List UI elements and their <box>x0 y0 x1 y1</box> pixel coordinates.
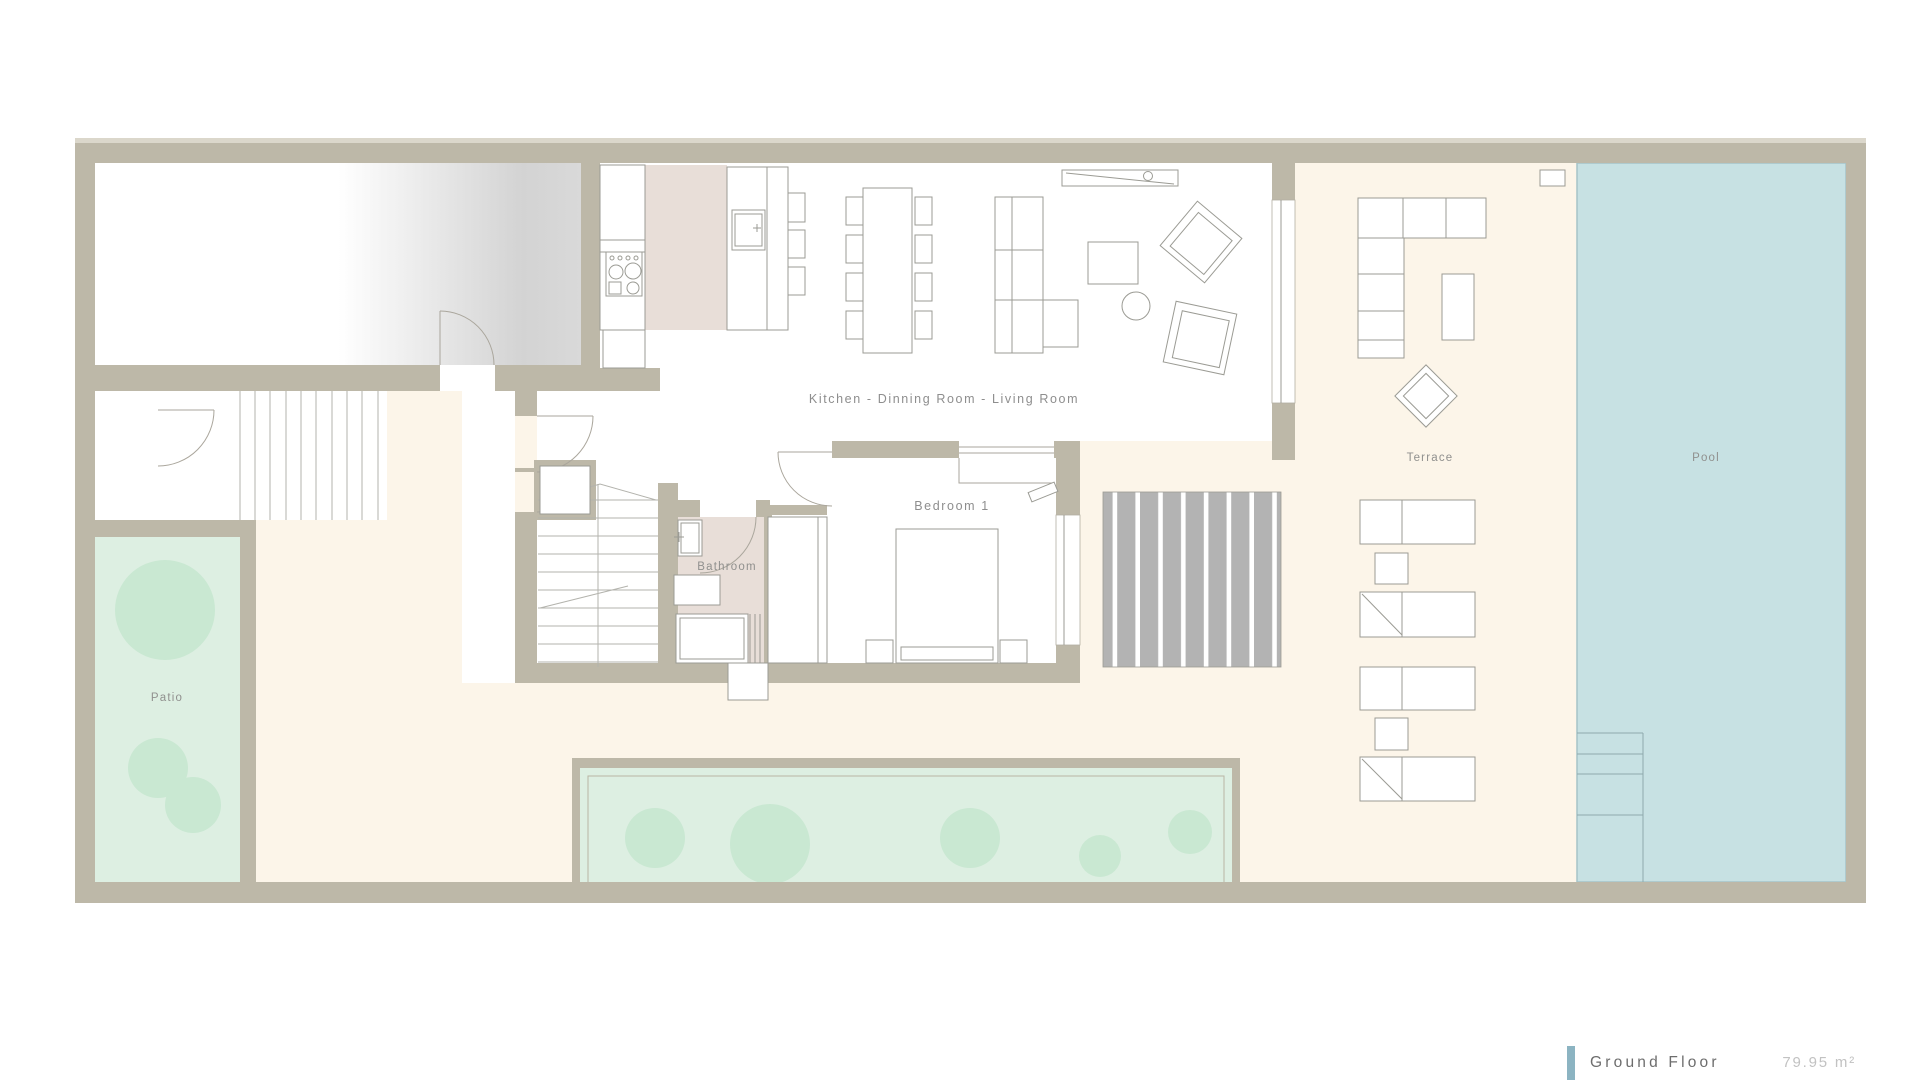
dining-chair <box>915 235 932 263</box>
label-terrace: Terrace <box>1407 452 1454 464</box>
wall-house-south <box>515 663 1080 683</box>
wall-hall-west-1 <box>515 391 537 416</box>
wall-bath-north-a <box>678 500 700 517</box>
pool-area <box>1577 163 1846 882</box>
planter-bush-5 <box>1168 810 1212 854</box>
window-bedroom-east <box>1056 515 1080 645</box>
wardrobe <box>768 517 827 663</box>
floor-plan-canvas: Kitchen - Dinning Room - Living Room Bed… <box>0 0 1920 1080</box>
dining-chair <box>915 197 932 225</box>
deck-pergola <box>1103 492 1281 667</box>
deck-slats <box>1103 492 1281 667</box>
kitchen-tall-unit <box>603 330 645 368</box>
bedroom-furniture <box>768 517 1027 663</box>
wall-patio-east <box>240 520 256 882</box>
area-legend: Ground Floor 79.95 m² Lower Floor 103.46… <box>1567 1046 1856 1080</box>
kitchen-floor-tile <box>645 165 727 330</box>
terrace-gate <box>1540 170 1565 186</box>
kitchen-island <box>727 167 788 330</box>
label-patio: Patio <box>151 692 183 704</box>
entry-stairs-zone <box>95 391 387 520</box>
armchair-2 <box>1163 301 1237 375</box>
wall-south <box>75 882 1866 903</box>
dining-chair <box>846 235 863 263</box>
wall-hall-west-3 <box>515 512 537 683</box>
planter-bush-1 <box>625 808 685 868</box>
kitchen-cabinet-column <box>600 165 645 330</box>
tv-console <box>1062 170 1178 186</box>
nightstand-right <box>1000 640 1027 663</box>
window-living-east <box>1272 200 1295 403</box>
wall-living-east-a <box>1272 163 1295 200</box>
bath-sink <box>674 520 702 556</box>
shower <box>676 614 760 663</box>
wall-garage-kitchen <box>581 163 600 371</box>
garage-floor <box>95 163 581 365</box>
lounger-side-table <box>1375 718 1408 750</box>
bed <box>896 529 998 663</box>
wall-garage-south-a <box>95 365 440 391</box>
wall-bedroom-east-a <box>1056 441 1080 515</box>
patio-bush-large <box>115 560 215 660</box>
stool-1 <box>788 193 805 222</box>
side-table-round <box>1122 292 1150 320</box>
patio-bush-small-2 <box>165 777 221 833</box>
garden-planter <box>572 758 1240 884</box>
dining-chair <box>846 311 863 339</box>
dining-table <box>863 188 912 353</box>
coffee-table <box>1088 242 1138 284</box>
stool-2 <box>788 230 805 258</box>
wall-kitchen-sw <box>600 368 660 391</box>
side-passage <box>462 391 515 683</box>
lounger-side-table <box>1375 553 1408 584</box>
wall-bedroom-north-a <box>832 441 959 458</box>
wall-north <box>75 143 1866 163</box>
wall-hall-west-2 <box>515 468 537 472</box>
legend-accent-bar <box>1567 1046 1575 1080</box>
hall-closet <box>540 466 590 514</box>
planter-bush-4 <box>1079 835 1121 877</box>
wall-west <box>75 143 95 903</box>
dining-chair <box>915 273 932 301</box>
stove <box>606 252 642 296</box>
nightstand-left <box>866 640 893 663</box>
plot-top-edge-line <box>75 138 1866 143</box>
wall-living-east-b <box>1272 403 1295 460</box>
legend-row-label: Ground Floor <box>1590 1054 1720 1071</box>
dining-chair <box>915 311 932 339</box>
wall-patio-north <box>95 520 256 537</box>
window-bath-south <box>728 663 768 700</box>
sink <box>732 210 765 250</box>
dining-chair <box>846 273 863 301</box>
wall-east <box>1846 143 1866 903</box>
outdoor-table <box>1442 274 1474 340</box>
patio-area <box>95 537 240 882</box>
stool-3 <box>788 267 805 295</box>
label-bathroom: Bathroom <box>697 561 756 573</box>
planter-bush-2 <box>730 804 810 884</box>
wall-wardrobe-back <box>766 505 827 515</box>
label-pool: Pool <box>1692 452 1720 464</box>
legend-row-value: 79.95 m² <box>1782 1054 1856 1071</box>
dining-chair <box>846 197 863 225</box>
label-kitchen-living: Kitchen - Dinning Room - Living Room <box>809 392 1079 406</box>
label-bedroom: Bedroom 1 <box>914 499 990 513</box>
toilet <box>674 575 720 605</box>
planter-bush-3 <box>940 808 1000 868</box>
